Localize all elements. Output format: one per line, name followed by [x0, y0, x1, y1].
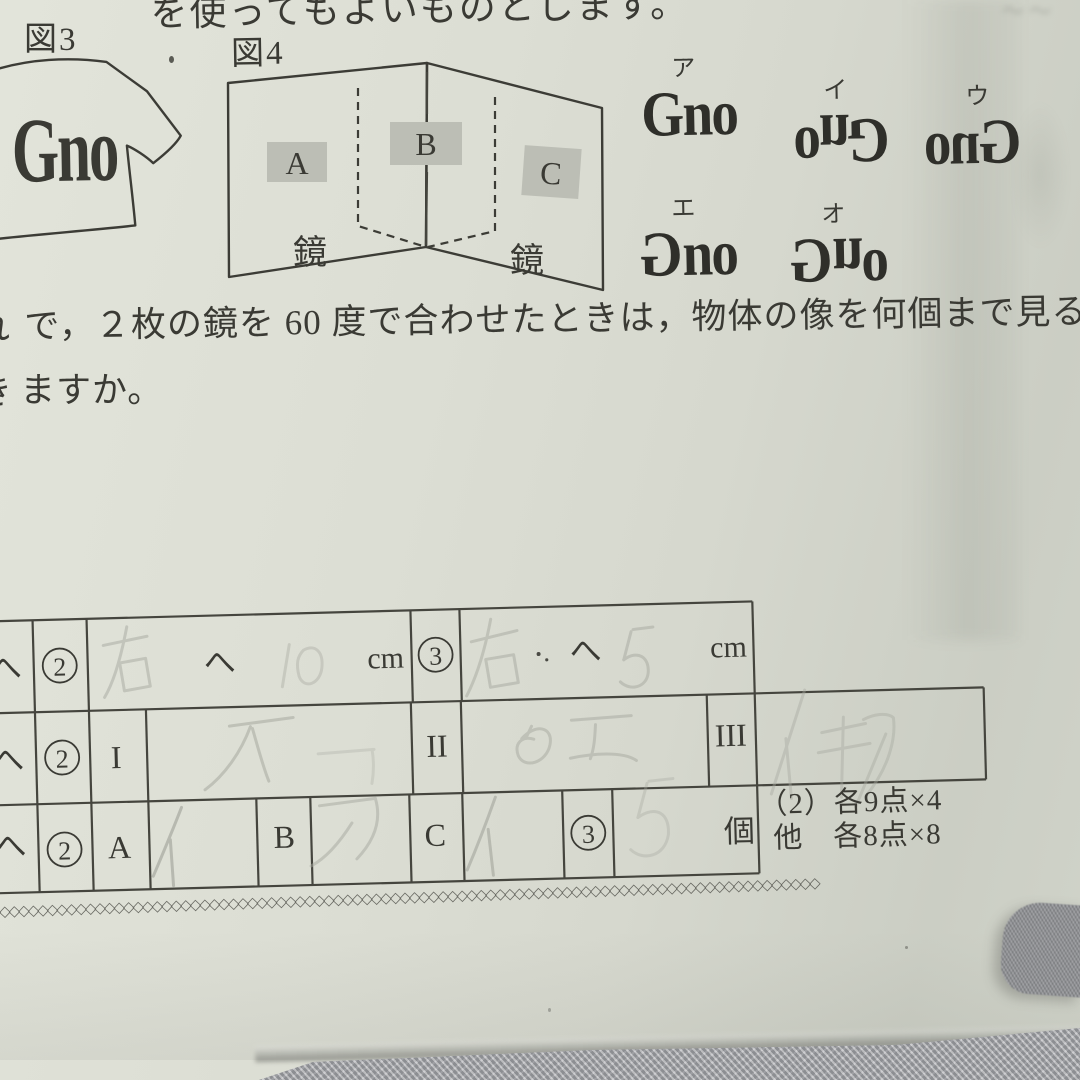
circled-3-digit: 3 — [581, 820, 595, 849]
option-e: エ Gno — [633, 195, 735, 285]
mirror-left-label: 鏡 — [293, 234, 327, 272]
option-i-char0: o — [793, 100, 820, 172]
speck — [905, 946, 908, 949]
table-line — [146, 709, 151, 889]
table-line — [410, 610, 412, 702]
option-e-char1: n — [682, 217, 712, 289]
dashed-fold-right — [428, 97, 495, 247]
label-A: A — [107, 829, 131, 866]
option-a-word: Gno — [641, 83, 728, 145]
score-note-line2: 他 各8点×8 — [759, 817, 944, 856]
roman-3: III — [714, 717, 747, 754]
table-line — [984, 687, 986, 779]
dashed-fold-left — [358, 88, 426, 247]
table-line — [459, 609, 461, 701]
dot — [545, 658, 548, 661]
roman-2: II — [426, 727, 448, 764]
tshirt-gno-text: Gno — [11, 98, 118, 201]
option-o-char0: G — [791, 230, 833, 291]
row1-hen-printed2: へ — [569, 632, 602, 669]
row1-hen-printed: へ — [203, 644, 236, 681]
table-line — [33, 620, 40, 892]
table-line — [409, 794, 411, 882]
table-line — [612, 789, 614, 877]
option-o-word: Gno — [791, 229, 878, 291]
speck — [548, 1008, 551, 1012]
option-i-char1: n — [818, 106, 848, 167]
figure3-tshirt-diagram: Gno — [0, 44, 212, 258]
table-line — [462, 793, 464, 881]
option-u: ウ Gno — [927, 83, 1029, 173]
option-o-char1: n — [832, 229, 862, 290]
row1-cm: cm — [367, 642, 405, 676]
speck — [169, 56, 174, 63]
table-line — [461, 701, 463, 793]
question-line2-edge-fragment: き — [0, 364, 12, 415]
option-u-word: Gno — [935, 111, 1022, 173]
option-o-char2: o — [861, 223, 888, 295]
table-line — [0, 601, 752, 622]
handwriting-row3-C — [465, 797, 497, 876]
row2-edge-hen: へ — [0, 742, 25, 779]
table-line — [411, 702, 413, 794]
photo-of-exam-answer-sheet: を使ってもよいものとします。 〜〜 図3 Gno 図4 A B C 鏡 鏡 ア … — [0, 0, 1080, 1080]
handwriting-row3-5 — [629, 779, 675, 857]
option-o: オ Gno — [783, 201, 885, 291]
circled-2-digit: 2 — [55, 744, 69, 773]
unit-ko: 個 — [723, 813, 755, 849]
figure4-mirror-diagram: A B C 鏡 鏡 — [215, 48, 615, 303]
fold-line-bottom — [426, 172, 427, 245]
handwriting-row2-II — [516, 716, 636, 764]
score-note-line1: （2）各9点×4 — [758, 783, 943, 822]
table-line — [310, 797, 312, 885]
row1-edge-hen: へ — [0, 650, 22, 687]
table-line — [256, 798, 258, 886]
question-line2: ますか。 — [20, 362, 163, 413]
showthrough-marks: 〜〜 — [1002, 0, 1056, 26]
circled-2-digit: 2 — [53, 652, 67, 681]
table-line — [0, 687, 984, 714]
handwriting-row1-migi5 — [465, 615, 655, 696]
table-line — [87, 619, 94, 891]
option-e-char0: G — [641, 224, 683, 285]
option-a: ア Gno — [633, 55, 735, 145]
option-i-char2: G — [847, 110, 889, 171]
circled-3-digit: 3 — [429, 642, 443, 671]
box-c-label: C — [539, 154, 563, 191]
mirror-right-label: 鏡 — [510, 242, 544, 280]
option-i-word: onG — [793, 105, 880, 167]
row1-cm2: cm — [710, 631, 748, 665]
handwriting-row2-I-faint — [318, 749, 375, 784]
handwriting-row3-B — [309, 798, 379, 866]
box-a-label: A — [285, 145, 308, 181]
circled-2-digit: 2 — [58, 836, 72, 865]
row3-edge-hen: へ — [0, 828, 27, 865]
option-i: イ onG — [785, 77, 887, 167]
roman-1: I — [110, 739, 122, 775]
answer-table: へ 2 へ cm 3 へ cm へ 2 I II III へ 2 A B C 3 — [0, 595, 1010, 905]
handwriting-row3-A — [152, 807, 184, 886]
option-e-char2: o — [711, 217, 738, 289]
label-B: B — [273, 818, 295, 855]
label-C: C — [424, 817, 446, 854]
mirror-left-panel — [228, 63, 427, 277]
score-note: （2）各9点×4 他 各8点×8 — [758, 783, 944, 856]
dot — [537, 652, 541, 656]
box-b-label: B — [415, 126, 436, 162]
question-line1-edge-fragment: れ — [0, 300, 10, 351]
table-line — [707, 695, 709, 787]
option-e-word: Gno — [641, 223, 728, 285]
gray-mesh-object — [999, 900, 1080, 998]
table-line — [562, 790, 564, 878]
handwriting-row2-I — [203, 717, 295, 789]
